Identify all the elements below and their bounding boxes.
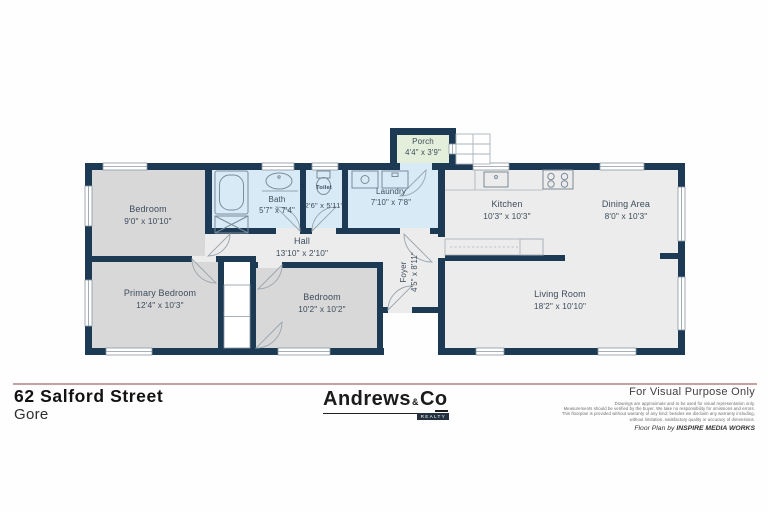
room-label-laundry: Laundry 7'10" x 7'8" <box>371 187 411 208</box>
room-dims: 12'4" x 10'3" <box>124 300 196 311</box>
window <box>678 277 685 330</box>
floorplan-canvas <box>0 0 768 512</box>
room-label-primary-bedroom: Primary Bedroom 12'4" x 10'3" <box>124 288 196 311</box>
room-dims: 10'3" x 10'3" <box>483 211 530 222</box>
window <box>106 348 152 355</box>
foyer-kitchen-opening <box>438 237 445 258</box>
kitchen-bench-wall <box>445 255 565 261</box>
floorplan-page: Porch 4'4" x 3'9" Bedroom 9'0" x 10'10" … <box>0 0 768 512</box>
disclaimer-line: without limitation, satisfactory quality… <box>562 417 755 422</box>
agency-name-main: Andrews <box>323 388 411 410</box>
window <box>85 280 92 326</box>
room-name: Bath <box>259 195 295 206</box>
room-dims: 5'7" x 7'4" <box>259 206 295 216</box>
room-label-kitchen: Kitchen 10'3" x 10'3" <box>483 199 530 222</box>
agency-realty-badge: REALTY <box>417 413 449 420</box>
credit-prefix: Floor Plan by <box>634 425 676 432</box>
room-name: Bedroom <box>124 204 171 216</box>
room-label-living-room: Living Room 18'2" x 10'10" <box>534 289 586 312</box>
window <box>598 348 636 355</box>
property-suburb: Gore <box>14 406 163 423</box>
room-dims: 13'10" x 2'10" <box>276 248 328 259</box>
room-dims: 8'0" x 10'3" <box>602 211 650 222</box>
legal-block: For Visual Purpose Only Drawings are app… <box>562 386 755 432</box>
room-name: Primary Bedroom <box>124 288 196 300</box>
room-label-bath: Bath 5'7" x 7'4" <box>259 195 295 216</box>
room-name: Toilet <box>305 185 344 192</box>
agency-name-co-o: o <box>435 388 448 412</box>
room-name: Dining Area <box>602 199 650 211</box>
porch-steps <box>456 134 490 164</box>
window <box>278 348 330 355</box>
room-label-toilet: Toilet 2'6" x 5'11" <box>305 185 344 211</box>
window <box>449 144 456 154</box>
credit-brand: INSPIRE MEDIA WORKS <box>676 425 755 432</box>
agency-wordmark: Andrews&Co <box>323 389 448 414</box>
window <box>262 163 294 170</box>
room-dims: 4'4" x 3'9" <box>405 148 441 158</box>
property-title-block: 62 Salford Street Gore <box>14 387 163 423</box>
room-name: Kitchen <box>483 199 530 211</box>
room-name: Bedroom <box>298 292 345 304</box>
closet <box>224 285 250 348</box>
agency-logo: Andrews&Co REALTY <box>323 389 449 414</box>
window <box>678 187 685 241</box>
agency-ampersand: & <box>412 397 419 407</box>
disclaimer-line: This floorplan is provided without warra… <box>562 411 755 416</box>
room-label-dining: Dining Area 8'0" x 10'3" <box>602 199 650 222</box>
room-name: Porch <box>405 137 441 148</box>
window <box>312 163 338 170</box>
room-name: Laundry <box>371 187 411 198</box>
room-label-hall: Hall 13'10" x 2'10" <box>276 236 328 259</box>
dining-living-wall-stub <box>660 253 678 259</box>
room-label-foyer: Foyer 4'5" x 8'11" <box>399 252 420 292</box>
room-dims: 4'5" x 8'11" <box>409 252 419 292</box>
window <box>476 348 504 355</box>
room-label-bedroom2: Bedroom 10'2" x 10'2" <box>298 292 345 315</box>
room-dims: 10'2" x 10'2" <box>298 304 345 315</box>
room-label-bedroom1: Bedroom 9'0" x 10'10" <box>124 204 171 227</box>
room-dims: 2'6" x 5'11" <box>305 200 344 211</box>
footer-divider <box>13 383 757 385</box>
room-label-porch: Porch 4'4" x 3'9" <box>405 137 441 158</box>
room-dims: 7'10" x 7'8" <box>371 198 411 208</box>
window <box>600 163 644 170</box>
floorplan-credit: Floor Plan by INSPIRE MEDIA WORKS <box>562 425 755 432</box>
window <box>85 186 92 226</box>
agency-name-co-c: C <box>420 388 435 410</box>
room-dims: 18'2" x 10'10" <box>534 301 586 312</box>
room-name: Hall <box>276 236 328 248</box>
room-name: Living Room <box>534 289 586 301</box>
window <box>103 163 147 170</box>
property-address: 62 Salford Street <box>14 387 163 406</box>
visual-purpose-note: For Visual Purpose Only <box>562 386 755 399</box>
room-name: Foyer <box>399 252 410 292</box>
room-dims: 9'0" x 10'10" <box>124 216 171 227</box>
